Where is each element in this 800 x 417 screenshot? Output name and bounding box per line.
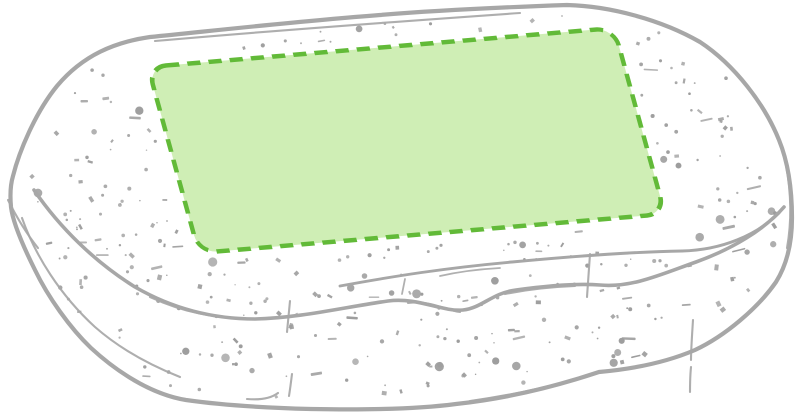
speckle [362,273,368,279]
crease-mark [690,320,693,392]
speckle [126,270,129,273]
speckle [771,222,777,229]
speckle [624,264,627,267]
speckle [327,294,333,299]
speckle [239,344,243,348]
speckle [392,26,395,29]
speckle [503,250,505,252]
speckle [744,249,749,254]
speckle [683,78,686,83]
speckle [674,154,679,157]
speckle [166,220,168,222]
speckle [536,242,539,245]
speckle [129,252,135,258]
speckle [636,41,640,45]
speckle [622,297,632,300]
speckle [67,247,69,249]
speckle [519,242,526,249]
speckle [592,331,594,333]
speckle [651,114,655,118]
speckle [29,174,34,179]
speckle [154,140,157,143]
speckle [37,201,39,203]
speckle [80,285,84,289]
speckle [408,291,412,295]
speckle [237,350,242,355]
speckle [76,228,78,230]
speckle [90,68,94,72]
speckle [389,290,395,296]
speckle [69,174,72,177]
speckle [221,354,230,363]
speckle [257,282,260,285]
speckle [147,128,152,133]
speckle [700,118,713,122]
speckle [435,247,438,250]
speckle [213,325,216,328]
speckle [547,245,549,247]
speckle [462,299,468,302]
speckle [652,259,656,263]
speckle [694,82,696,84]
speckle [640,94,643,97]
speckle [66,219,69,222]
speckle [311,371,323,376]
speckle [696,159,698,161]
speckle [80,100,88,103]
speckle [135,107,143,115]
speckle [542,318,546,322]
speckle [289,324,294,329]
speckle [87,160,93,164]
speckle [182,348,189,355]
speckle [76,227,78,229]
speckle [104,184,108,188]
speckle [175,229,179,234]
speckle [513,241,516,244]
speckle [356,26,363,33]
speckle [727,115,729,117]
speckle [198,388,202,392]
speckle [435,362,444,371]
speckle [611,354,615,358]
speckle [639,63,643,67]
speckle [675,81,678,84]
speckle [150,223,155,228]
speckle [380,339,384,343]
speckle [724,76,728,80]
speckle [338,258,342,262]
speckle [208,272,212,276]
speckle [233,338,239,344]
speckle [418,344,420,346]
product-illustration [0,0,800,417]
speckle [560,242,564,247]
speckle [328,338,337,340]
speckle [530,18,535,23]
speckle [670,67,673,70]
speckle [484,350,488,354]
speckle [63,213,67,217]
speckle [294,271,300,277]
marking-area[interactable] [148,28,665,253]
speckle [208,257,217,266]
speckle [614,349,621,356]
speckle [399,389,402,394]
speckle [427,250,430,253]
speckle [660,317,662,319]
speckle [78,224,83,230]
speckle [536,300,541,304]
speckle [561,15,563,17]
speckle [521,380,525,384]
speckle [676,163,682,169]
crease-mark [402,279,405,294]
speckle [163,243,165,247]
speckle [561,358,565,362]
speckle [441,300,443,302]
speckle [641,351,647,357]
speckle [120,200,123,203]
speckle [59,258,61,260]
speckle [715,301,721,308]
speckle [346,316,358,319]
speckle [656,142,659,145]
speckle [85,156,88,159]
speckle [91,129,97,135]
speckle [695,233,704,242]
speckle [143,365,146,368]
speckle [659,59,662,62]
speckle [443,337,446,340]
speckle [620,360,625,365]
speckle [136,292,139,295]
speckle [242,46,246,50]
speckle [690,109,693,112]
speckle [697,109,703,114]
speckle [96,254,109,256]
speckle [384,384,386,386]
speckle [125,254,127,256]
speckle [747,185,762,190]
speckle [70,210,72,212]
speckle [512,362,521,371]
speckle [420,319,422,321]
speckle [162,199,167,201]
speckle [719,155,721,157]
speckle [730,127,733,131]
speckle [297,355,300,358]
speckle [300,42,302,44]
speckle [346,255,349,258]
speckle [626,307,628,309]
speckle [127,134,130,137]
speckle [412,289,421,298]
speckle [284,39,287,42]
speckle [746,210,748,212]
speckle [110,149,112,151]
speckle [647,37,651,41]
speckle [106,248,108,250]
speckle [720,307,727,313]
speckle [101,194,104,197]
speckle [534,295,536,297]
speckle [616,286,620,289]
speckle [383,257,385,259]
speckle [237,261,245,264]
crease-mark [289,374,292,396]
speckle [721,135,724,138]
speckle [234,362,238,366]
speckle [102,97,109,101]
speckle [475,374,476,375]
speckle [146,149,147,150]
speckle [157,274,162,280]
speckle [688,92,691,95]
speckle [467,353,471,357]
speckle [529,274,532,277]
speckle [758,176,762,180]
speckle [513,335,526,340]
speckle [396,330,400,335]
speckle [368,253,372,257]
speckle [654,318,656,320]
speckle [716,187,719,190]
speckle [354,312,357,315]
speckle [172,245,183,247]
speckle [337,322,342,327]
speckle [734,216,737,219]
speckle [63,255,67,259]
speckle [118,203,122,207]
speckle [526,371,527,372]
speckle [158,239,162,243]
speckle [674,130,678,134]
speckle [734,277,736,279]
speckle [254,311,257,314]
speckle [180,353,182,355]
speckle [166,275,168,277]
speckle [628,307,632,311]
speckle [429,366,432,368]
speckle [249,302,252,305]
speckle [352,358,359,365]
speckle [714,264,719,270]
speckle [243,315,244,316]
speckle [567,359,571,363]
speckle [597,338,599,340]
speckle [564,335,571,340]
speckle [248,286,250,288]
speckle [436,335,439,338]
speckle [249,368,254,373]
speckle [575,230,583,233]
speckle [314,334,317,337]
speckle [599,289,604,292]
speckle [151,265,163,270]
speckle [74,92,76,94]
speckle [630,259,631,260]
speckle [226,299,231,303]
box-illustration-canvas [0,0,800,417]
marking-area-group [148,28,665,253]
speckle [276,311,282,317]
speckle [664,123,668,127]
speckle [197,284,202,289]
speckle [666,150,670,154]
speckle [130,265,134,269]
speckle [598,327,600,329]
speckle [727,200,731,204]
speckle [491,333,493,335]
speckle [664,264,668,268]
speckle [446,328,448,330]
speckle [232,363,235,365]
speckle [79,218,81,220]
speckle [718,198,722,202]
speckle [79,279,82,285]
speckle [439,244,442,247]
speckle [457,295,460,298]
speckle [88,196,94,203]
speckle [644,69,659,71]
speckle [318,39,326,42]
speckle [135,233,138,236]
speckle [658,259,661,262]
speckle [84,276,88,280]
crease-mark [247,393,278,399]
speckle [261,43,265,47]
speckle [382,391,387,396]
speckle [723,125,728,130]
speckle [320,31,322,33]
speckle [429,22,432,25]
speckle [245,258,249,262]
speckle [156,222,157,223]
speckle [121,234,125,238]
speckle [223,273,225,275]
speckle [457,340,460,343]
speckle [46,241,53,245]
speckle [746,167,748,169]
speckle [210,296,213,299]
speckle [575,325,579,329]
speckle [660,156,667,163]
speckle [169,384,172,387]
speckle [317,294,321,298]
speckle [146,279,149,282]
speckle [535,250,542,252]
speckle [330,41,332,43]
speckle [144,168,148,172]
speckle [631,355,641,359]
speckle [101,74,104,77]
speckle [267,352,273,358]
speckle [118,336,120,338]
crease-mark [587,254,590,297]
speckle [616,315,619,319]
speckle [493,342,495,344]
speckle [387,248,390,251]
speckle [54,130,60,136]
speckle [129,116,141,119]
speckle [426,381,430,385]
speckle [492,357,499,364]
speckle [118,328,123,332]
speckle [698,205,704,209]
speckle [491,277,499,285]
speckle [369,297,380,298]
speckle [94,238,101,241]
speckle [730,277,734,282]
speckle [716,215,725,224]
speckle [471,296,478,299]
speckle [395,246,399,250]
speckle [681,62,685,66]
speckle [600,263,602,265]
speckle [199,353,201,355]
speckle [508,329,515,332]
speckle [736,192,738,194]
speckle [647,304,651,308]
speckle [435,312,439,316]
speckle [142,375,150,377]
speckle [514,330,519,332]
speckle [286,375,288,377]
speckle [367,356,369,358]
speckle [234,284,235,285]
speckle [507,243,510,246]
speckle [275,257,281,262]
speckle [513,302,519,307]
speckle [746,288,750,292]
speckle [99,213,102,216]
speckle [119,244,121,246]
speckle [622,337,636,340]
speckle [210,354,213,357]
speckle [206,300,210,304]
speckle [345,379,348,382]
speckle [549,341,551,343]
speckle [395,33,398,36]
speckle [478,362,480,364]
speckle [127,187,131,191]
speckle [221,341,223,343]
speckle [265,297,268,300]
speckle [770,241,776,247]
speckle [139,200,141,202]
speckle [682,304,691,306]
speckle [722,225,735,230]
speckle [610,359,618,367]
speckle [78,180,83,184]
speckle [110,101,112,103]
speckle [474,336,478,340]
speckle [732,248,746,253]
speckle [657,31,660,34]
speckle [74,159,79,162]
speckle [610,314,615,319]
speckle [110,139,114,143]
speckle [478,27,482,32]
